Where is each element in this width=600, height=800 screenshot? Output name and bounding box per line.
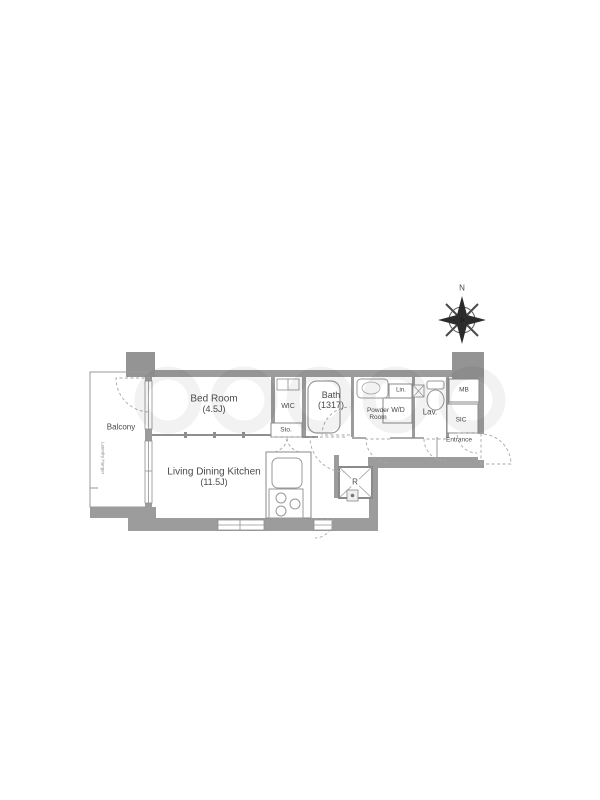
plan-linework: [0, 0, 600, 800]
stove: [269, 489, 303, 518]
window-kitchen-bottom: [314, 520, 332, 530]
door-arc-powder: [366, 439, 390, 463]
door-arc-storage-left: [272, 437, 287, 452]
wic-label: WIC: [281, 403, 295, 411]
balcony-label: Balcony: [107, 424, 135, 433]
compass-rose: [438, 296, 486, 344]
bedroom-label: Bed Room: [190, 394, 237, 405]
sic-label: SIC: [456, 416, 467, 423]
sliding-door-tick: [213, 432, 216, 438]
sliding-door-tick: [184, 432, 187, 438]
ldk-label: Living Dining Kitchen: [167, 467, 260, 478]
window-ldk-side: [145, 441, 152, 503]
refrigerator-label: R: [351, 479, 359, 488]
lavatory-label: Lav.: [423, 409, 438, 418]
meter-glyph-box: [347, 490, 358, 501]
door-arc-entrance: [481, 434, 511, 464]
meter-box-label: MB: [459, 386, 469, 393]
floor-plan: N Balcony Laundry Hanger Bed Room (4.5J)…: [0, 0, 600, 800]
powder-room-label: Powder Room: [361, 407, 395, 421]
kitchen-sink: [272, 458, 302, 488]
entrance-label: Entrance: [446, 436, 472, 443]
storage-label: Sto.: [280, 426, 292, 433]
refrigerator-letter: R: [351, 478, 359, 487]
bedroom-size-label: (4.5J): [202, 405, 225, 415]
compass-north-label: N: [459, 285, 465, 294]
kitchen-counter: [266, 452, 311, 518]
window-ldk-bottom: [218, 520, 264, 530]
laundry-hanger-label: Laundry Hanger: [100, 442, 105, 474]
bath-size-label: (1317): [318, 401, 344, 411]
linen-label: Lin.: [396, 388, 406, 395]
washer-dryer-label: W/D: [391, 407, 405, 415]
door-arc-lavatory: [424, 439, 446, 461]
ldk-size-label: (11.5J): [200, 478, 227, 488]
door-arc-storage-right: [287, 437, 302, 452]
